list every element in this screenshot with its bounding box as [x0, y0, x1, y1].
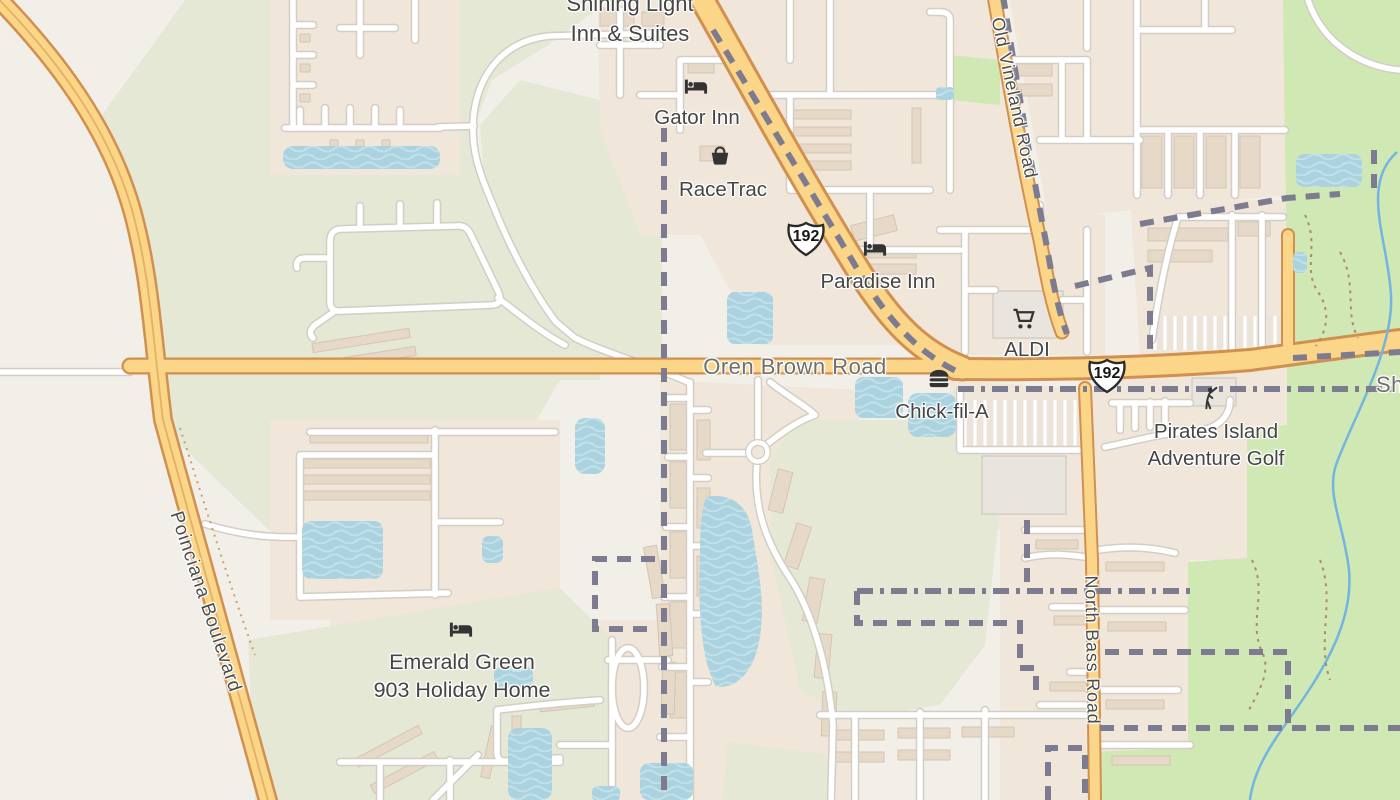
lodging-icon[interactable] [682, 72, 712, 102]
road-label-edge-partial: Sh [1376, 372, 1400, 398]
road-label-oren-brown: Oren Brown Road [703, 354, 887, 380]
lodging-icon[interactable] [447, 615, 477, 645]
supermarket-cart-icon[interactable] [1010, 305, 1040, 335]
poi-label-line2: Adventure Golf [1148, 445, 1285, 472]
poi-label-paradise-inn[interactable]: Paradise Inn [820, 268, 935, 295]
poi-label-racetrac[interactable]: RaceTrac [679, 176, 767, 203]
us-192-shield: 192 [1087, 358, 1127, 394]
poi-label-gator-inn[interactable]: Gator Inn [654, 104, 739, 131]
poi-label-emerald-green[interactable]: Emerald Green 903 Holiday Home [374, 648, 551, 704]
poi-label-aldi[interactable]: ALDI [1004, 336, 1050, 363]
poi-label-shining-light[interactable]: Shining Light Inn & Suites [566, 0, 693, 49]
poi-label-line2: 903 Holiday Home [374, 676, 551, 704]
us-192-shield: 192 [786, 221, 826, 257]
poi-label-pirates-island[interactable]: Pirates Island Adventure Golf [1148, 418, 1285, 472]
poi-label-line1: Shining Light [566, 0, 693, 19]
shop-basket-icon[interactable] [707, 143, 737, 173]
route-number: 192 [786, 228, 826, 246]
poi-label-chick-fil-a[interactable]: Chick-fil-A [895, 398, 988, 425]
map-canvas[interactable]: 192 192 Oren Brown Road Poinciana Boulev… [0, 0, 1400, 800]
road-label-north-bass: North Bass Road [1080, 575, 1104, 724]
poi-label-line1: Pirates Island [1148, 418, 1285, 445]
poi-label-line1: Emerald Green [374, 648, 551, 676]
lodging-icon[interactable] [861, 234, 891, 264]
fast-food-icon[interactable] [925, 365, 955, 395]
golf-icon[interactable] [1195, 385, 1225, 415]
route-number: 192 [1087, 365, 1127, 383]
poi-label-line2: Inn & Suites [566, 19, 693, 49]
